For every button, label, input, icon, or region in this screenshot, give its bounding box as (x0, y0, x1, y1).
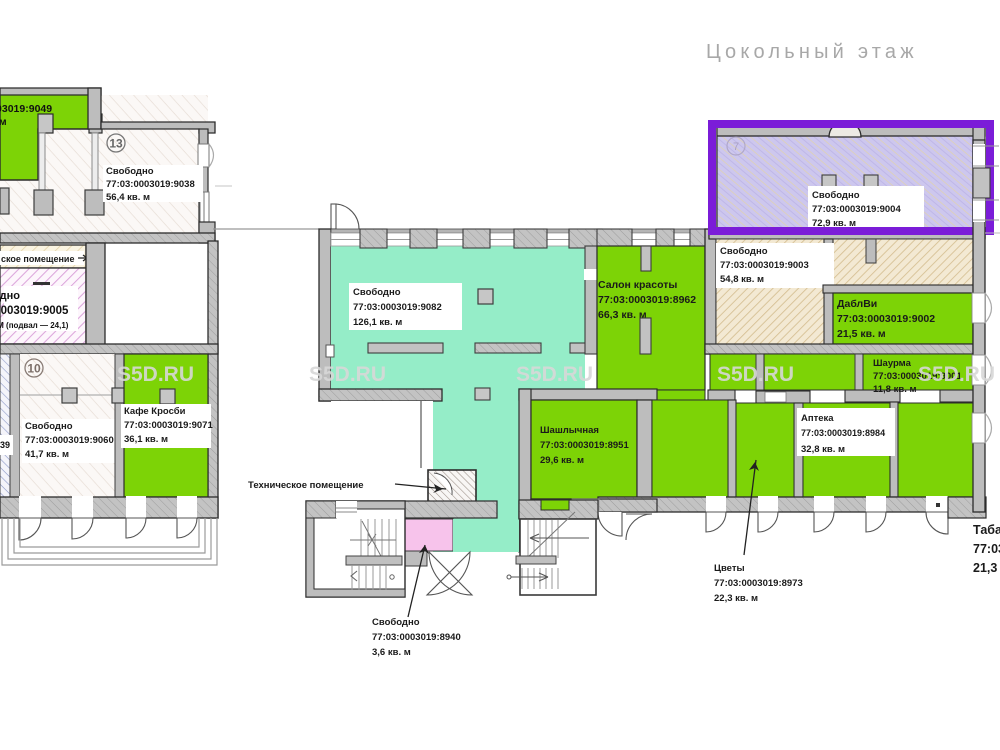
svg-text:77:03:0003019:8973: 77:03:0003019:8973 (714, 578, 803, 589)
svg-text:77:03:0003019:9071: 77:03:0003019:9071 (124, 420, 213, 431)
svg-text:Цокольный этаж: Цокольный этаж (706, 41, 918, 63)
svg-text:ДаблВи: ДаблВи (837, 298, 877, 310)
svg-text:13: 13 (109, 137, 123, 151)
svg-text:77:03:0003019:9082: 77:03:0003019:9082 (353, 302, 442, 313)
svg-text:Кафе Кросби: Кафе Кросби (124, 406, 186, 417)
svg-text:77:03:0003019:9004: 77:03:0003019:9004 (812, 204, 901, 215)
svg-text:77:03:0003019:8962: 77:03:0003019:8962 (598, 294, 696, 306)
svg-text:56,6 кв. м: 56,6 кв. м (0, 116, 7, 128)
svg-text:ское помещение: ское помещение (1, 254, 74, 264)
svg-text:77:03:0003019:9060: 77:03:0003019:9060 (25, 435, 114, 446)
svg-text:77:03:0003019:9049: 77:03:0003019:9049 (0, 103, 52, 115)
svg-text:Свободно: Свободно (106, 166, 154, 177)
svg-text:Свободно: Свободно (25, 421, 73, 432)
svg-text::39: :39 (0, 440, 10, 450)
svg-text:21,3 кв. м: 21,3 кв. м (973, 561, 1000, 575)
svg-text:54,8 кв. м: 54,8 кв. м (720, 274, 764, 285)
svg-text:Свободно: Свободно (720, 246, 768, 257)
svg-text:Салон красоты: Салон красоты (598, 279, 677, 291)
svg-text:11,8 кв. м: 11,8 кв. м (873, 384, 917, 395)
svg-text:Свободно: Свободно (0, 290, 20, 302)
svg-text:126,1 кв. м: 126,1 кв. м (353, 317, 402, 328)
svg-text:77:03:0003019: 77:03:0003019 (973, 542, 1000, 556)
svg-text:Техническое помещение: Техническое помещение (248, 480, 364, 491)
svg-text:Аптека: Аптека (801, 413, 834, 424)
svg-text:77:03:0003019:8940: 77:03:0003019:8940 (372, 632, 461, 643)
svg-text:Свободно: Свободно (372, 617, 420, 628)
svg-text:Шашлычная: Шашлычная (540, 425, 599, 436)
svg-text:S5D.RU: S5D.RU (918, 363, 995, 386)
svg-text:77:03:0003019:8951: 77:03:0003019:8951 (540, 440, 629, 451)
svg-text:3,6 кв. м: 3,6 кв. м (372, 647, 411, 658)
svg-text:S5D.RU: S5D.RU (516, 363, 593, 386)
svg-text:77:03:0003019:9038: 77:03:0003019:9038 (106, 179, 195, 190)
svg-text:77:03:0003019:8984: 77:03:0003019:8984 (801, 428, 885, 438)
svg-text:Свободно: Свободно (353, 287, 401, 298)
svg-text:7: 7 (733, 141, 739, 153)
svg-text:S5D.RU: S5D.RU (309, 363, 386, 386)
svg-text:36,1 кв. м: 36,1 кв. м (124, 434, 168, 445)
svg-text:77:03:0003019:9005: 77:03:0003019:9005 (0, 305, 69, 317)
svg-text:21,5 кв. м: 21,5 кв. м (837, 328, 886, 340)
svg-text:77:03:0003019:9002: 77:03:0003019:9002 (837, 313, 935, 325)
svg-text:S5D.RU: S5D.RU (117, 363, 194, 386)
svg-text:41,7 кв. м: 41,7 кв. м (25, 449, 69, 460)
svg-text:49,9 кв. М (подвал — 24,1): 49,9 кв. М (подвал — 24,1) (0, 321, 69, 330)
svg-text:22,3 кв. м: 22,3 кв. м (714, 593, 758, 604)
svg-text:Табак: Табак (973, 523, 1000, 537)
svg-text:10: 10 (27, 362, 41, 376)
svg-text:Свободно: Свободно (812, 190, 860, 201)
svg-text:56,4 кв. м: 56,4 кв. м (106, 192, 150, 203)
svg-text:32,8 кв. м: 32,8 кв. м (801, 444, 845, 455)
svg-text:Шаурма: Шаурма (873, 358, 912, 369)
svg-text:29,6 кв. м: 29,6 кв. м (540, 455, 584, 466)
svg-text:77:03:0003019:9003: 77:03:0003019:9003 (720, 260, 809, 271)
svg-text:S5D.RU: S5D.RU (717, 363, 794, 386)
svg-text:Цветы: Цветы (714, 563, 745, 574)
